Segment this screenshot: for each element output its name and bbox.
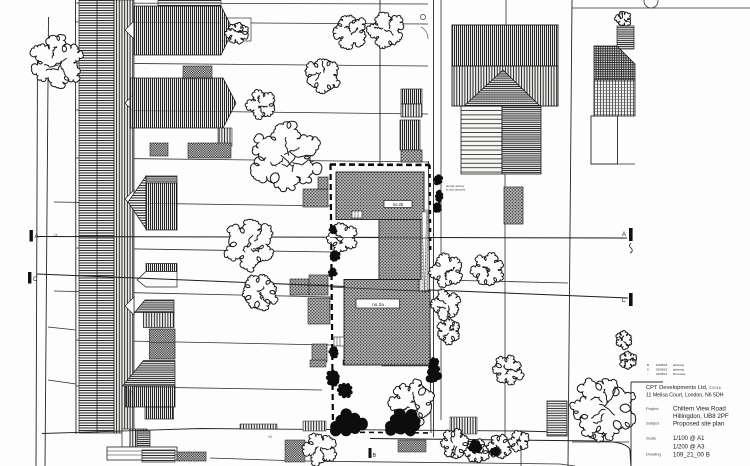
- svg-text:B: B: [373, 453, 377, 459]
- svg-text:no.2b: no.2b: [393, 202, 404, 207]
- svg-text:B: B: [647, 363, 649, 367]
- svg-text:A: A: [622, 232, 626, 238]
- svg-text:10: 10: [268, 435, 272, 439]
- svg-text:to club grounds: to club grounds: [446, 188, 466, 192]
- svg-text:11 Melisa Court, London, N6 5D: 11 Melisa Court, London, N6 5DH: [646, 392, 724, 398]
- svg-text:Drawing: Drawing: [646, 452, 661, 457]
- svg-text:109_21_00 B: 109_21_00 B: [673, 451, 710, 458]
- svg-text:-: -: [647, 372, 648, 376]
- svg-text:10/28/16: 10/28/16: [656, 363, 668, 367]
- svg-text:1/100 @ A1: 1/100 @ A1: [673, 436, 705, 442]
- svg-text:20/04/16: 20/04/16: [656, 368, 668, 372]
- svg-text:planning: planning: [673, 363, 684, 367]
- svg-text:planning: planning: [673, 368, 684, 372]
- svg-text:89.9 m: 89.9 m: [391, 337, 402, 341]
- svg-text:1/200 @ A3: 1/200 @ A3: [673, 444, 705, 450]
- svg-text:01/05/14: 01/05/14: [656, 372, 668, 376]
- svg-text:Scale: Scale: [646, 435, 657, 440]
- svg-text:Hillingdon, UB8 2PF: Hillingdon, UB8 2PF: [673, 413, 729, 420]
- svg-text:Proposed site plan: Proposed site plan: [673, 421, 725, 428]
- svg-text:Project: Project: [646, 406, 659, 411]
- svg-text:Subject: Subject: [646, 420, 660, 425]
- svg-text:first issue: first issue: [673, 372, 686, 376]
- svg-text:89.9 m: 89.9 m: [390, 254, 401, 258]
- svg-text:A: A: [35, 234, 39, 240]
- svg-text:no.2a: no.2a: [372, 302, 384, 307]
- svg-text:C: C: [33, 277, 38, 283]
- svg-text:C: C: [622, 298, 627, 304]
- svg-text:A: A: [647, 368, 649, 372]
- svg-text:Chiltern View Road: Chiltern View Road: [673, 406, 726, 413]
